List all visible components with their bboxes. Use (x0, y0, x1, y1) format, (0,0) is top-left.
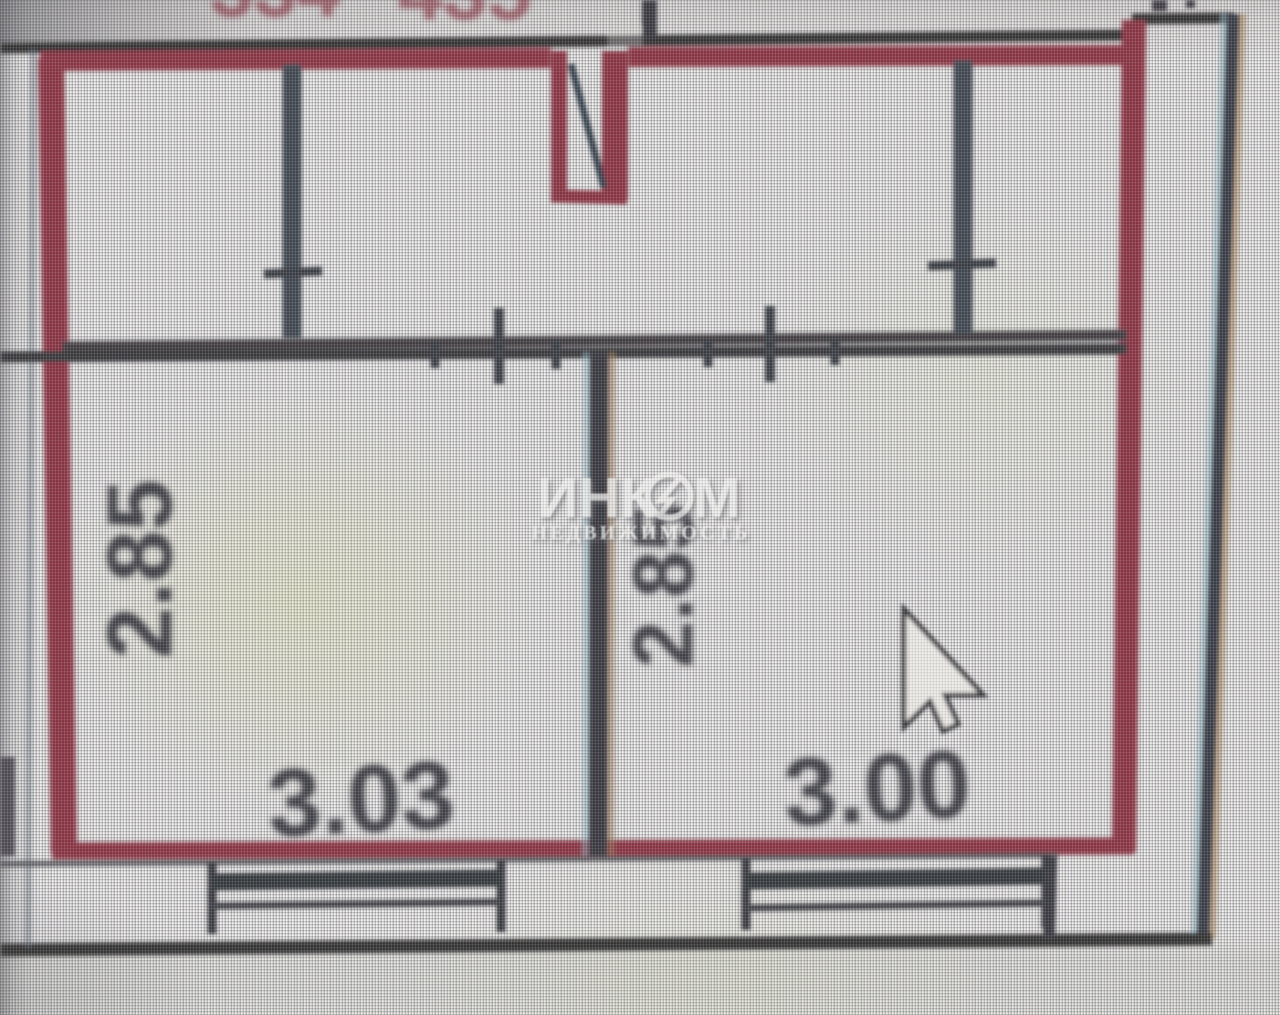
svg-text:334: 334 (210, 0, 340, 33)
svg-text:2.85: 2.85 (89, 479, 191, 658)
svg-text:ИНК: ИНК (537, 466, 655, 530)
svg-text:3.03: 3.03 (265, 741, 457, 858)
svg-text:НЕДВИЖИМОСТЬ: НЕДВИЖИМОСТЬ (532, 523, 751, 544)
svg-text:М: М (693, 466, 740, 530)
svg-text:435: 435 (398, 0, 531, 36)
svg-text:3.00: 3.00 (781, 730, 973, 847)
